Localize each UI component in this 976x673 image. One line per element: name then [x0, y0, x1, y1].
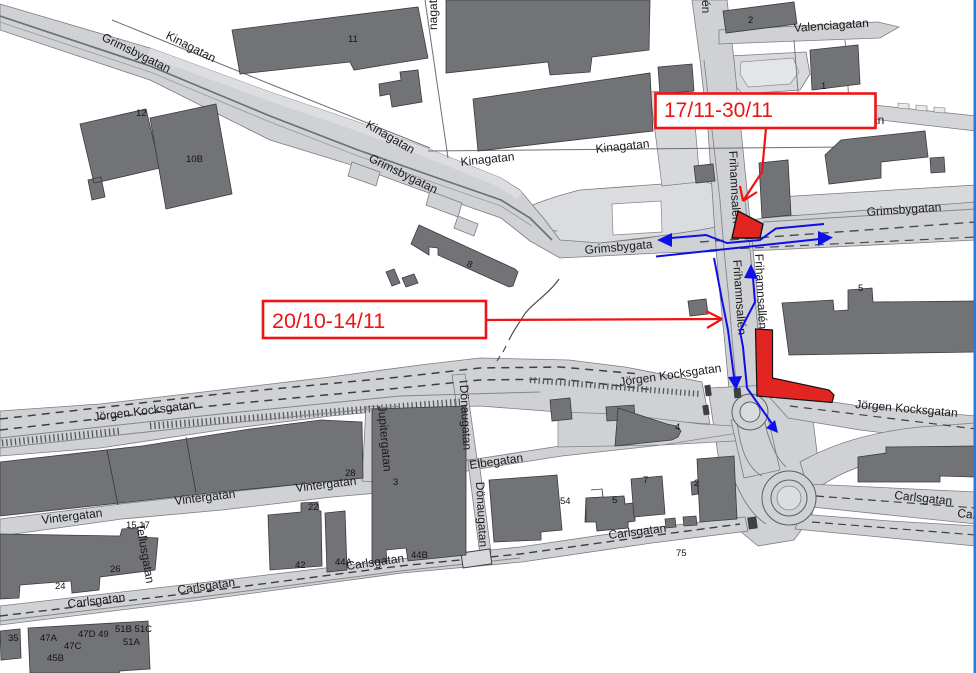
svg-text:75: 75 [676, 548, 687, 559]
svg-text:15 17: 15 17 [126, 520, 150, 531]
svg-text:28: 28 [345, 468, 356, 479]
svg-text:7: 7 [643, 475, 648, 486]
svg-text:35: 35 [8, 633, 19, 644]
svg-text:én: én [699, 0, 713, 13]
svg-text:44A: 44A [335, 557, 353, 568]
svg-text:5: 5 [858, 283, 863, 294]
svg-text:26: 26 [110, 564, 121, 575]
svg-text:54: 54 [560, 496, 571, 507]
svg-text:20/10-14/11: 20/10-14/11 [272, 309, 385, 333]
svg-text:17/11-30/11: 17/11-30/11 [664, 99, 773, 122]
svg-text:47D 49: 47D 49 [78, 629, 109, 640]
svg-text:10B: 10B [186, 154, 203, 165]
svg-text:1: 1 [821, 81, 826, 92]
svg-text:2: 2 [694, 478, 699, 489]
svg-text:3: 3 [393, 477, 398, 488]
svg-text:4: 4 [675, 422, 680, 433]
svg-text:44B: 44B [411, 550, 428, 561]
svg-text:12: 12 [136, 108, 147, 119]
svg-text:5: 5 [612, 495, 617, 506]
svg-text:51A: 51A [123, 637, 141, 648]
svg-text:45B: 45B [47, 653, 64, 664]
svg-text:22: 22 [308, 502, 319, 513]
svg-text:2: 2 [748, 15, 753, 26]
svg-text:24: 24 [55, 581, 66, 592]
svg-text:47C: 47C [64, 641, 82, 652]
svg-text:51B 51C: 51B 51C [115, 624, 152, 635]
svg-text:42: 42 [295, 560, 306, 571]
svg-text:Car: Car [957, 506, 976, 522]
svg-text:47A: 47A [40, 633, 58, 644]
svg-text:11: 11 [348, 34, 358, 45]
svg-text:nagatan: nagatan [426, 0, 440, 30]
